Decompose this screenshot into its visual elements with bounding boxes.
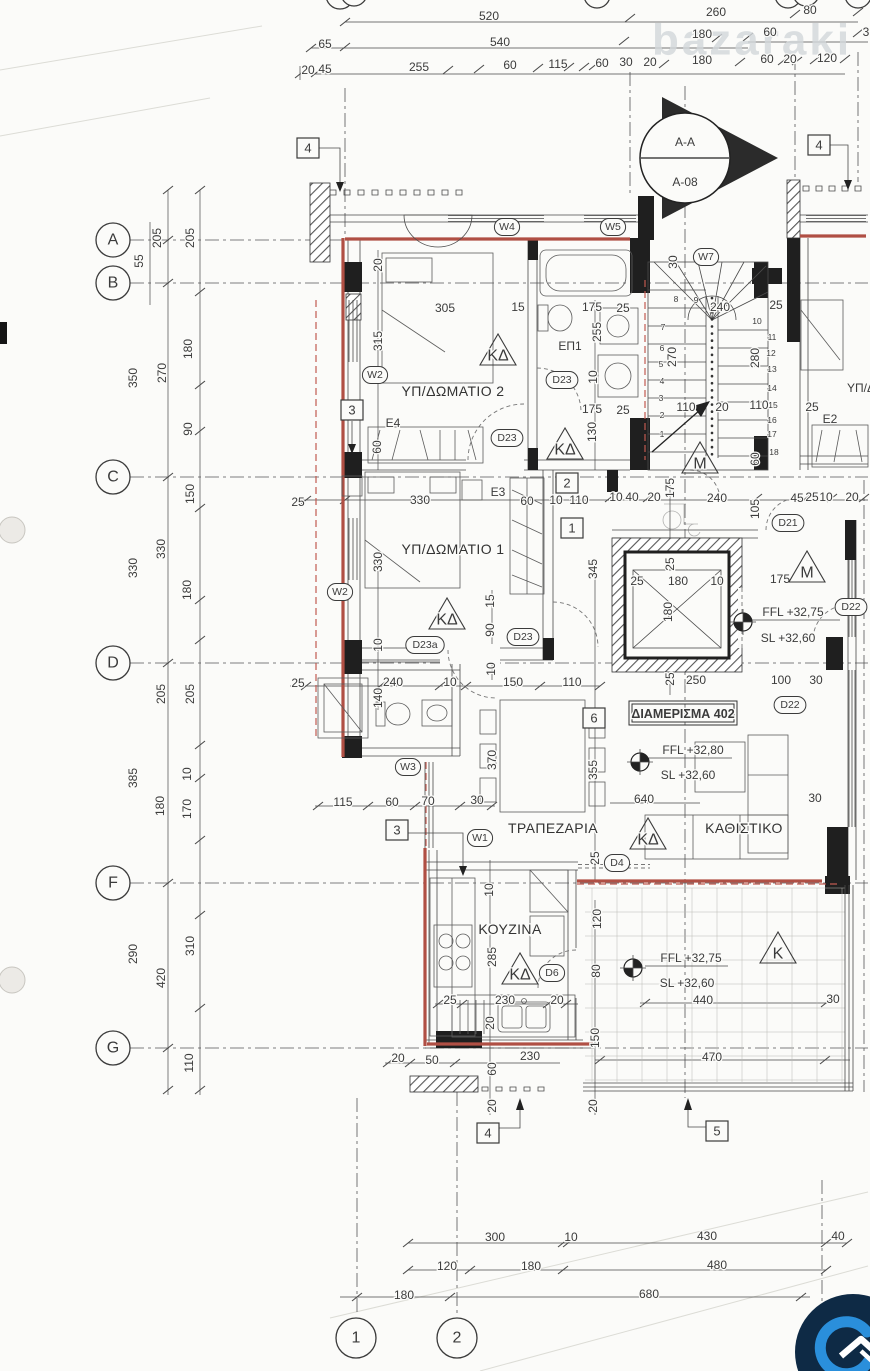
dim-label: 470: [702, 1050, 722, 1064]
opening-tag: D22: [774, 697, 806, 714]
svg-text:205: 205: [150, 228, 164, 248]
svg-text:16: 16: [767, 415, 777, 425]
dim-label: 330: [126, 558, 140, 578]
svg-text:15: 15: [511, 300, 525, 314]
dim-label: 3: [863, 25, 870, 39]
dim-label: 270: [665, 347, 679, 367]
dim-label: 20: [715, 400, 729, 414]
svg-text:D4: D4: [610, 857, 624, 869]
svg-text:60: 60: [748, 452, 762, 466]
svg-text:2: 2: [453, 1330, 462, 1347]
svg-text:25: 25: [616, 301, 630, 315]
opening-tag: D22: [835, 599, 867, 616]
svg-text:180: 180: [394, 1288, 414, 1302]
svg-text:80: 80: [589, 964, 603, 978]
dim-label: 115: [333, 795, 352, 809]
level-ffl: FFL +32,75: [762, 605, 824, 619]
dim-label: E3: [491, 485, 506, 499]
room-label-dining: ΤΡΑΠΕΖΑΡΙΑ: [508, 820, 598, 836]
svg-text:285: 285: [485, 947, 499, 967]
dimension-lines: [150, 8, 869, 1301]
stair-step-number: 3: [659, 393, 664, 403]
svg-text:110: 110: [676, 400, 695, 414]
svg-text:205: 205: [183, 228, 197, 248]
svg-text:440: 440: [693, 993, 713, 1007]
dim-label: 205: [183, 228, 197, 248]
level-sl: SL +32,60: [761, 631, 816, 645]
svg-text:180: 180: [692, 27, 712, 41]
dim-label: 80: [803, 3, 817, 17]
apartment-label: ΔΙΑΜΕΡΙΣΜΑ 402: [629, 701, 737, 725]
svg-text:30: 30: [809, 673, 823, 687]
svg-text:ΔΙΑΜΕΡΙΣΜΑ 402: ΔΙΑΜΕΡΙΣΜΑ 402: [631, 707, 734, 721]
symbol-triangle: ΚΔ: [480, 334, 516, 365]
svg-text:ΤΡΑΠΕΖΑΡΙΑ: ΤΡΑΠΕΖΑΡΙΑ: [508, 820, 598, 836]
dim-label: 25: [291, 495, 305, 509]
svg-text:15: 15: [768, 400, 778, 410]
svg-text:10: 10: [484, 662, 498, 676]
stair-step-number: 16: [767, 415, 777, 425]
svg-text:25: 25: [291, 676, 305, 690]
opening-tag: W1: [467, 830, 492, 847]
svg-text:FFL +32,75: FFL +32,75: [660, 951, 722, 965]
svg-text:F: F: [108, 875, 118, 892]
svg-text:W7: W7: [698, 251, 714, 263]
svg-text:40: 40: [625, 490, 639, 504]
svg-text:30: 30: [666, 255, 680, 269]
bathtub: [540, 250, 632, 296]
dim-label: 270: [155, 363, 169, 383]
dim-label: 240: [383, 675, 403, 689]
grid-bubble: B: [96, 266, 130, 300]
svg-text:60: 60: [595, 56, 609, 70]
dim-label: 350: [126, 368, 140, 388]
dim-label: 255: [590, 322, 604, 342]
svg-text:G: G: [107, 1040, 119, 1057]
svg-text:480: 480: [707, 1258, 727, 1272]
detail-marker: 3: [386, 820, 408, 840]
svg-text:1: 1: [660, 429, 665, 439]
svg-text:140: 140: [371, 688, 385, 708]
dim-label: 45: [318, 62, 332, 76]
sink: [422, 700, 452, 726]
svg-text:6: 6: [590, 711, 597, 726]
svg-text:680: 680: [639, 1287, 659, 1301]
dim-label: 30: [470, 793, 484, 807]
svg-text:150: 150: [183, 484, 197, 504]
svg-text:20: 20: [643, 55, 657, 69]
svg-text:A-A: A-A: [675, 135, 695, 149]
dim-label: 30: [619, 55, 633, 69]
room-label-kitchen: ΚΟΥΖΙΝΑ: [478, 921, 542, 937]
svg-text:330: 330: [371, 552, 385, 572]
dim-label: 10: [710, 574, 724, 588]
dim-label: 330: [371, 552, 385, 572]
svg-text:115: 115: [548, 57, 567, 71]
section-sheet: A-08: [672, 175, 698, 189]
svg-text:345: 345: [586, 559, 600, 579]
svg-text:ΚΔ: ΚΔ: [436, 612, 458, 629]
svg-text:30: 30: [470, 793, 484, 807]
svg-text:ΚΔ: ΚΔ: [554, 442, 576, 459]
dim-label: 230: [495, 993, 515, 1007]
svg-text:14: 14: [767, 383, 777, 393]
svg-text:90: 90: [483, 623, 497, 637]
symbol-triangle: ΚΔ: [429, 598, 465, 629]
svg-text:ΥΠ/ΔΩΜΑΤΙΟ 2: ΥΠ/ΔΩΜΑΤΙΟ 2: [402, 383, 505, 399]
svg-text:M: M: [800, 565, 813, 582]
svg-text:4: 4: [304, 141, 311, 156]
svg-text:10: 10: [710, 574, 724, 588]
svg-text:D22: D22: [841, 601, 860, 613]
dim-label: 175: [582, 300, 602, 314]
svg-text:2: 2: [563, 476, 570, 491]
svg-text:C: C: [107, 469, 119, 486]
svg-text:4: 4: [815, 138, 822, 153]
dim-label: 10: [564, 1230, 578, 1244]
dim-label: 520: [479, 9, 499, 23]
svg-text:10: 10: [564, 1230, 578, 1244]
stair-step-number: 4: [660, 376, 665, 386]
dim-label: 430: [697, 1229, 717, 1243]
svg-text:20: 20: [550, 993, 564, 1007]
svg-text:W2: W2: [332, 586, 348, 598]
svg-text:D22: D22: [780, 699, 799, 711]
dim-label: 20: [483, 1016, 497, 1030]
section-label: A-A: [675, 135, 695, 149]
svg-text:640: 640: [634, 792, 654, 806]
stair-step-number: 1: [660, 429, 665, 439]
svg-text:SL +32,60: SL +32,60: [660, 976, 715, 990]
svg-text:255: 255: [409, 60, 429, 74]
opening-tag: W5: [600, 219, 625, 236]
svg-text:4: 4: [484, 1126, 491, 1141]
dim-label: 120: [437, 1259, 457, 1273]
dim-label: 175: [663, 478, 677, 498]
logo: [795, 1294, 870, 1371]
svg-text:17: 17: [767, 429, 777, 439]
dim-label: 300: [485, 1230, 505, 1244]
svg-text:45: 45: [318, 62, 332, 76]
svg-text:W5: W5: [605, 221, 621, 233]
svg-text:110: 110: [749, 398, 768, 412]
svg-text:W1: W1: [472, 832, 488, 844]
svg-text:300: 300: [485, 1230, 505, 1244]
svg-text:70: 70: [421, 794, 435, 808]
dim-label: 385: [126, 768, 140, 788]
dim-label: 180: [181, 339, 195, 359]
dim-label: 150: [588, 1028, 602, 1048]
dim-label: 25: [663, 672, 677, 686]
svg-text:120: 120: [437, 1259, 457, 1273]
svg-text:25: 25: [443, 993, 457, 1007]
svg-text:W2: W2: [367, 369, 383, 381]
dim-label: 110: [569, 493, 588, 507]
dim-label: 285: [485, 947, 499, 967]
dim-label: 440: [693, 993, 713, 1007]
svg-text:180: 180: [668, 574, 688, 588]
dim-label: 115: [548, 57, 567, 71]
dim-label: 25: [588, 851, 602, 865]
svg-text:10: 10: [443, 675, 457, 689]
svg-text:520: 520: [479, 9, 499, 23]
svg-text:11: 11: [768, 332, 777, 342]
dim-label: 30: [808, 791, 822, 805]
detail-marker: 5: [706, 1121, 728, 1141]
grid-bubble: F: [96, 866, 130, 900]
svg-text:30: 30: [826, 992, 840, 1006]
detail-marker: 4: [808, 135, 830, 155]
svg-text:120: 120: [817, 51, 837, 65]
svg-text:280: 280: [748, 348, 762, 368]
floor-plan-page: bazaraki52026080655401806032045255601156…: [0, 0, 870, 1371]
dim-label: 20: [647, 490, 661, 504]
dim-label: 20: [371, 258, 385, 272]
dim-label: 205: [183, 684, 197, 704]
dim-label: 20: [845, 490, 859, 504]
svg-text:250: 250: [686, 673, 706, 687]
svg-text:370: 370: [485, 750, 499, 770]
grid-bubble: A: [96, 223, 130, 257]
svg-text:175: 175: [663, 478, 677, 498]
stair-step-number: 6: [660, 343, 665, 353]
svg-text:115: 115: [333, 795, 352, 809]
dim-label: 420: [154, 968, 168, 988]
svg-text:K: K: [773, 946, 784, 963]
opening-tag: D23: [491, 430, 523, 447]
svg-text:25: 25: [588, 851, 602, 865]
dim-label: 20: [783, 52, 797, 66]
dim-label: 25: [616, 301, 630, 315]
dim-label: 250: [686, 673, 706, 687]
svg-text:60: 60: [763, 25, 777, 39]
dim-label: 60: [370, 440, 384, 454]
svg-text:180: 180: [153, 796, 167, 816]
dim-label: 640: [634, 792, 654, 806]
dim-label: 180: [668, 574, 688, 588]
dim-label: 180: [394, 1288, 414, 1302]
dim-label: 20: [550, 993, 564, 1007]
stair-step-number: 18: [769, 447, 779, 457]
svg-text:150: 150: [588, 1028, 602, 1048]
grid-bubble: 1: [336, 1318, 376, 1358]
svg-text:20: 20: [483, 1016, 497, 1030]
dim-label: 180: [692, 53, 712, 67]
svg-text:180: 180: [661, 602, 675, 622]
opening-tag: D4: [604, 855, 629, 872]
stair-step-number: 13: [767, 364, 777, 374]
stair-step-number: 15: [768, 400, 778, 410]
svg-text:20: 20: [783, 52, 797, 66]
dim-label: 60: [385, 795, 399, 809]
svg-text:20: 20: [391, 1051, 405, 1065]
svg-text:E2: E2: [823, 412, 838, 426]
dim-label: 150: [183, 484, 197, 504]
dim-label: 180: [692, 27, 712, 41]
svg-text:20: 20: [301, 63, 315, 77]
dim-label: 10: [609, 490, 623, 504]
svg-text:M: M: [693, 456, 706, 473]
svg-text:10: 10: [549, 493, 563, 507]
svg-text:180: 180: [180, 580, 194, 600]
svg-text:25: 25: [616, 403, 630, 417]
dim-label: E4: [386, 416, 401, 430]
dim-label: 355: [586, 760, 600, 780]
svg-text:9: 9: [694, 295, 699, 305]
svg-text:270: 270: [155, 363, 169, 383]
dim-label: 90: [181, 422, 195, 436]
dim-label: 20: [301, 63, 315, 77]
svg-text:12: 12: [766, 348, 776, 358]
svg-text:D: D: [107, 655, 119, 672]
svg-text:230: 230: [520, 1049, 540, 1063]
detail-marker: 2: [556, 473, 578, 493]
svg-text:25: 25: [630, 574, 644, 588]
svg-text:10: 10: [752, 316, 762, 326]
svg-text:20: 20: [485, 1099, 499, 1113]
dim-label: 25: [805, 490, 819, 504]
dim-label: 60: [760, 52, 774, 66]
dim-label: 70: [421, 794, 435, 808]
svg-text:20: 20: [845, 490, 859, 504]
svg-text:270: 270: [665, 347, 679, 367]
svg-text:ΕΠ1: ΕΠ1: [558, 339, 582, 353]
dim-label: 10: [443, 675, 457, 689]
dim-label: E2: [823, 412, 838, 426]
dim-label: 370: [485, 750, 499, 770]
level-symbol: [627, 749, 653, 775]
svg-text:540: 540: [490, 35, 510, 49]
dim-label: 30: [666, 255, 680, 269]
svg-text:310: 310: [183, 936, 197, 956]
stair-step-number: 5: [659, 359, 664, 369]
svg-text:6: 6: [660, 343, 665, 353]
room-label-neighbor: ΥΠ/Δ: [847, 381, 870, 395]
dim-label: 150: [503, 675, 523, 689]
punch-hole: [0, 517, 25, 543]
svg-text:1: 1: [352, 1330, 361, 1347]
svg-text:30: 30: [808, 791, 822, 805]
room-label-ep1: ΕΠ1: [558, 339, 582, 353]
room-label-bedroom2: ΥΠ/ΔΩΜΑΤΙΟ 2: [402, 383, 505, 399]
svg-text:240: 240: [707, 491, 727, 505]
dim-label: 480: [707, 1258, 727, 1272]
level-sl: SL +32,60: [660, 976, 715, 990]
svg-text:3: 3: [348, 403, 355, 418]
svg-text:A: A: [108, 232, 119, 249]
grid-bubble: 2: [437, 1318, 477, 1358]
svg-text:175: 175: [582, 402, 602, 416]
opening-tag: D6: [539, 965, 564, 982]
dim-label: 65: [318, 37, 332, 51]
svg-text:ΚΔ: ΚΔ: [509, 967, 531, 984]
symbol-triangle: K: [760, 932, 796, 963]
svg-text:100: 100: [771, 673, 791, 687]
svg-text:D21: D21: [778, 517, 797, 529]
dim-label: 310: [183, 936, 197, 956]
dim-label: 305: [435, 301, 455, 315]
stair-step-number: 2: [660, 410, 665, 420]
svg-text:7: 7: [661, 322, 666, 332]
symbol-triangle: M: [789, 551, 825, 582]
dim-label: 45: [790, 491, 804, 505]
svg-text:170: 170: [180, 799, 194, 819]
toilet: [538, 305, 572, 331]
svg-text:120: 120: [590, 909, 604, 929]
svg-text:55: 55: [132, 254, 146, 268]
dim-label: 205: [154, 684, 168, 704]
dim-label: 25: [630, 574, 644, 588]
dim-label: 15: [483, 594, 497, 608]
svg-text:A-08: A-08: [672, 175, 698, 189]
svg-text:D23: D23: [513, 631, 532, 643]
svg-text:110: 110: [569, 493, 588, 507]
symbol-triangle: ΚΔ: [547, 428, 583, 459]
svg-text:350: 350: [126, 368, 140, 388]
dim-label: 10: [819, 490, 833, 504]
dim-label: 20: [485, 1099, 499, 1113]
dim-label: 180: [180, 580, 194, 600]
svg-text:8: 8: [674, 294, 679, 304]
dim-label: 170: [180, 799, 194, 819]
dim-label: 10: [549, 493, 563, 507]
dim-label: 110: [676, 400, 695, 414]
room-label-bedroom1: ΥΠ/ΔΩΜΑΤΙΟ 1: [402, 541, 505, 557]
dim-label: 540: [490, 35, 510, 49]
svg-text:10: 10: [609, 490, 623, 504]
dim-label: 40: [625, 490, 639, 504]
svg-text:20: 20: [647, 490, 661, 504]
svg-text:60: 60: [760, 52, 774, 66]
svg-text:E3: E3: [491, 485, 506, 499]
svg-text:20: 20: [586, 1099, 600, 1113]
svg-text:205: 205: [183, 684, 197, 704]
dim-label: 10: [180, 767, 194, 781]
dim-label: 240: [707, 491, 727, 505]
dim-label: 25: [805, 400, 819, 414]
svg-text:18: 18: [769, 447, 779, 457]
dim-label: 330: [410, 493, 430, 507]
dim-label: 80: [589, 964, 603, 978]
svg-text:180: 180: [521, 1259, 541, 1273]
svg-text:60: 60: [385, 795, 399, 809]
svg-text:330: 330: [126, 558, 140, 578]
svg-text:25: 25: [805, 400, 819, 414]
stair-step-number: 12: [766, 348, 776, 358]
stair-step-number: 17: [767, 429, 777, 439]
dim-label: 330: [154, 539, 168, 559]
svg-text:10: 10: [819, 490, 833, 504]
dim-label: 15: [511, 300, 525, 314]
svg-text:420: 420: [154, 968, 168, 988]
washing-machine: [598, 355, 638, 397]
detail-marker: 4: [477, 1123, 499, 1143]
grid-bubble: D: [96, 646, 130, 680]
room-label-living: ΚΑΘΙΣΤΙΚΟ: [705, 820, 783, 836]
svg-text:80: 80: [803, 3, 817, 17]
svg-text:ΥΠ/ΔΩΜΑΤΙΟ 1: ΥΠ/ΔΩΜΑΤΙΟ 1: [402, 541, 505, 557]
svg-text:110: 110: [182, 1053, 196, 1072]
dim-label: 30: [809, 673, 823, 687]
dim-label: 120: [590, 909, 604, 929]
svg-text:D6: D6: [545, 967, 559, 979]
dim-label: 175: [770, 572, 790, 586]
dim-label: 345: [586, 559, 600, 579]
svg-text:13: 13: [767, 364, 777, 374]
opening-tag: W7: [693, 249, 718, 266]
dim-label: 25: [291, 676, 305, 690]
svg-text:10: 10: [482, 883, 496, 897]
